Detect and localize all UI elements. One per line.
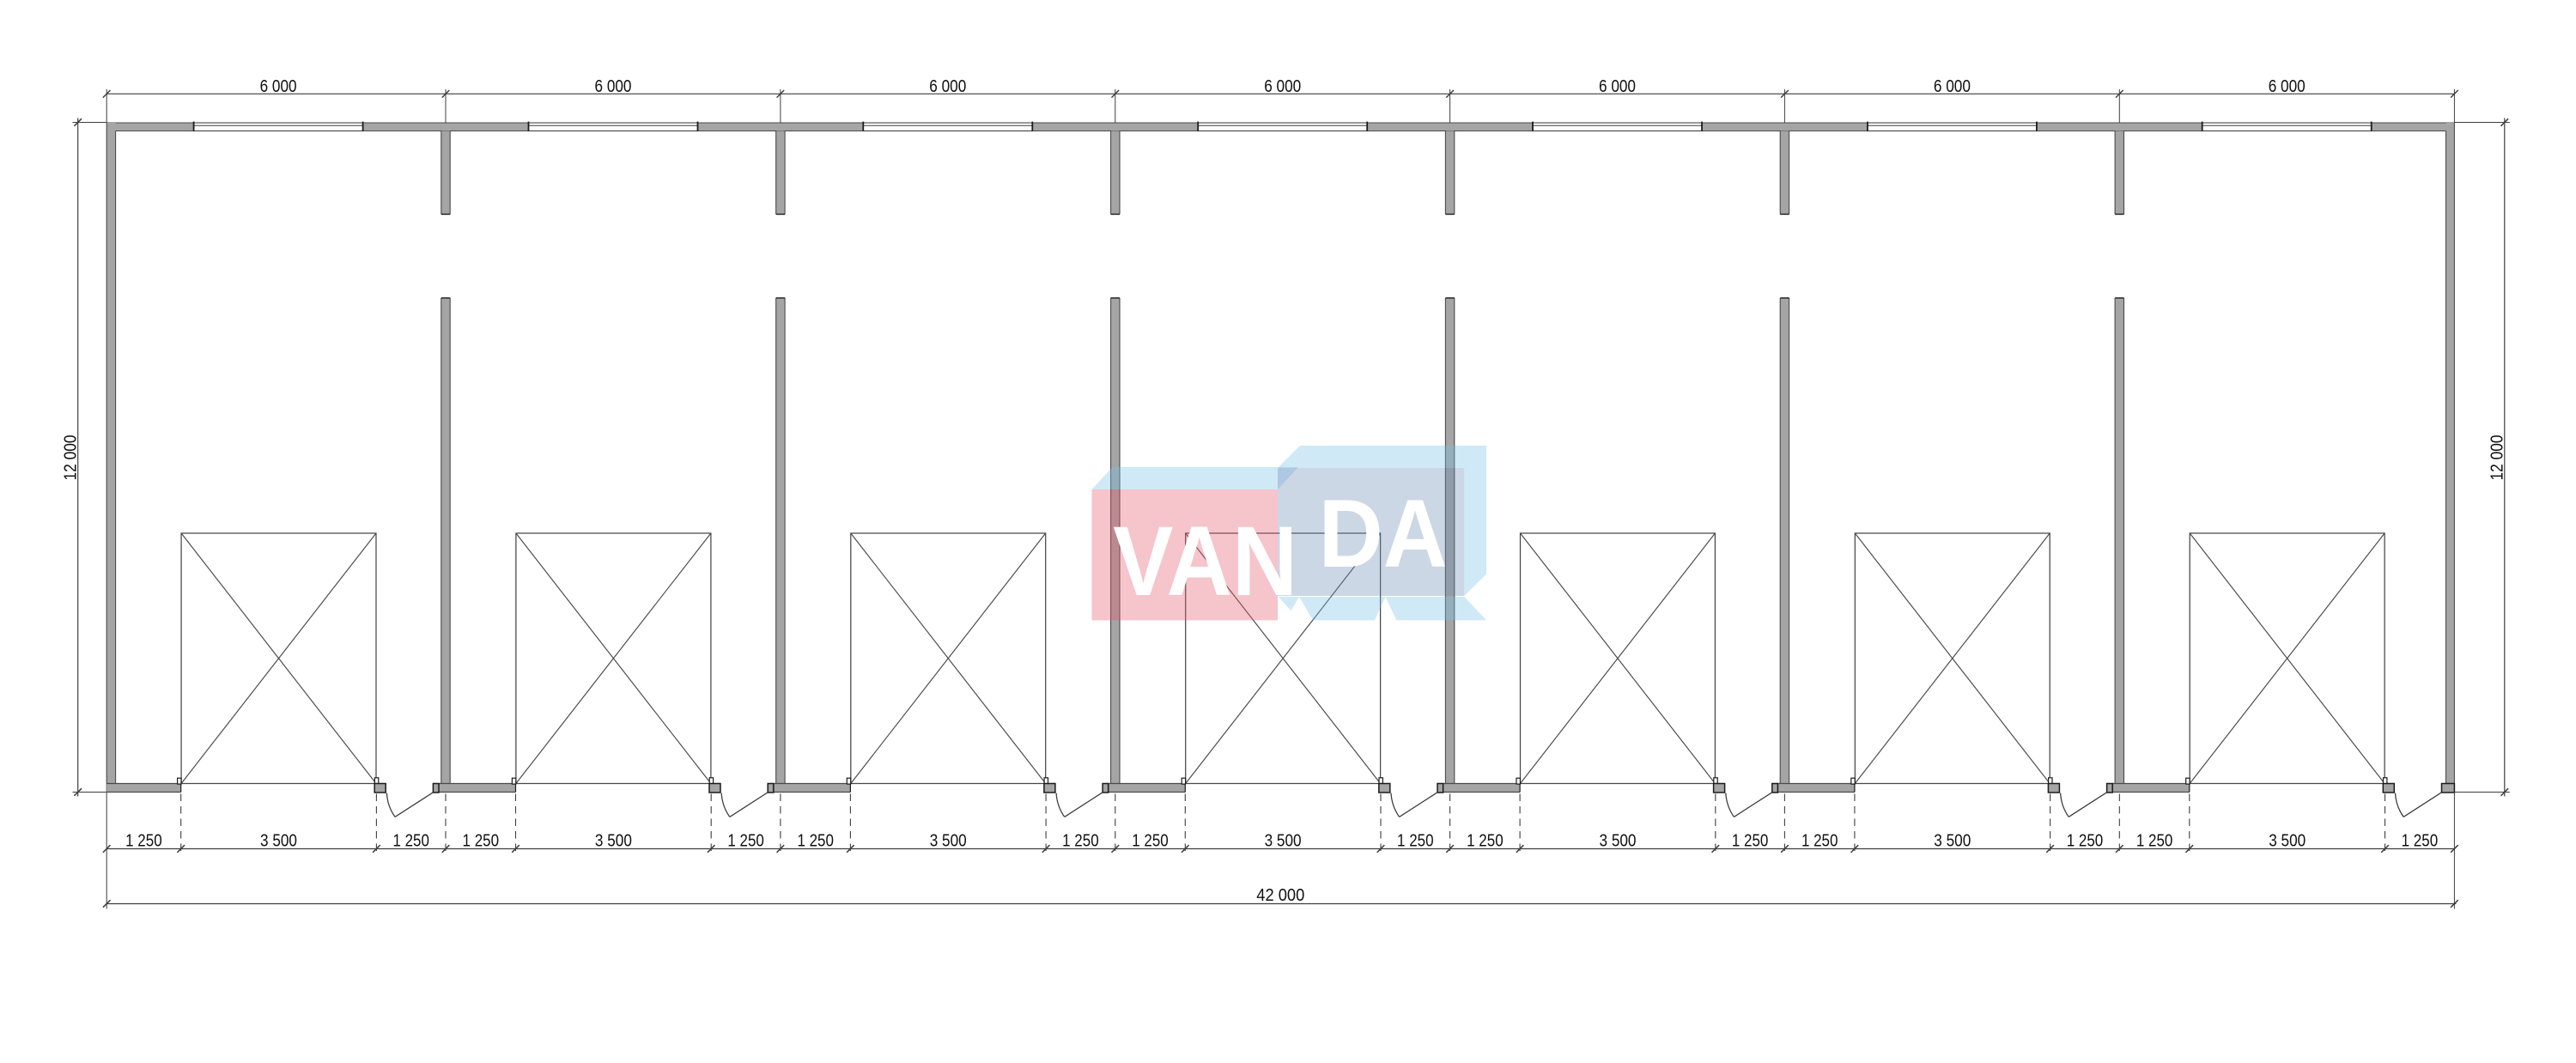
svg-text:1 250: 1 250 [2402, 832, 2439, 851]
svg-text:3 500: 3 500 [1265, 832, 1302, 851]
svg-text:1 250: 1 250 [1397, 832, 1434, 851]
svg-text:6 000: 6 000 [1934, 77, 1971, 96]
svg-text:3 500: 3 500 [930, 832, 967, 851]
svg-text:6 000: 6 000 [1264, 77, 1301, 96]
svg-text:6 000: 6 000 [260, 77, 297, 96]
svg-text:3 500: 3 500 [260, 832, 297, 851]
svg-text:1 250: 1 250 [125, 832, 162, 851]
svg-text:6 000: 6 000 [1599, 77, 1636, 96]
svg-text:1 250: 1 250 [1062, 832, 1099, 851]
svg-text:DA: DA [1319, 480, 1448, 587]
svg-text:1 250: 1 250 [797, 832, 834, 851]
svg-text:1 250: 1 250 [392, 832, 429, 851]
svg-text:3 500: 3 500 [1934, 832, 1971, 851]
svg-text:3 500: 3 500 [1600, 832, 1637, 851]
svg-text:3 500: 3 500 [595, 832, 632, 851]
svg-text:6 000: 6 000 [2269, 77, 2306, 96]
svg-text:1 250: 1 250 [1732, 832, 1769, 851]
svg-text:1 250: 1 250 [727, 832, 764, 851]
svg-text:1 250: 1 250 [463, 832, 500, 851]
svg-text:42 000: 42 000 [1256, 886, 1304, 905]
svg-text:3 500: 3 500 [2269, 832, 2306, 851]
svg-text:6 000: 6 000 [595, 77, 632, 96]
svg-text:6 000: 6 000 [929, 77, 966, 96]
svg-text:VAN: VAN [1113, 507, 1297, 617]
svg-text:1 250: 1 250 [2067, 832, 2104, 851]
svg-text:1 250: 1 250 [1132, 832, 1169, 851]
svg-text:1 250: 1 250 [1467, 832, 1504, 851]
svg-text:12 000: 12 000 [2488, 435, 2506, 481]
svg-text:1 250: 1 250 [1801, 832, 1838, 851]
svg-text:12 000: 12 000 [61, 435, 80, 481]
svg-text:1 250: 1 250 [2136, 832, 2173, 851]
